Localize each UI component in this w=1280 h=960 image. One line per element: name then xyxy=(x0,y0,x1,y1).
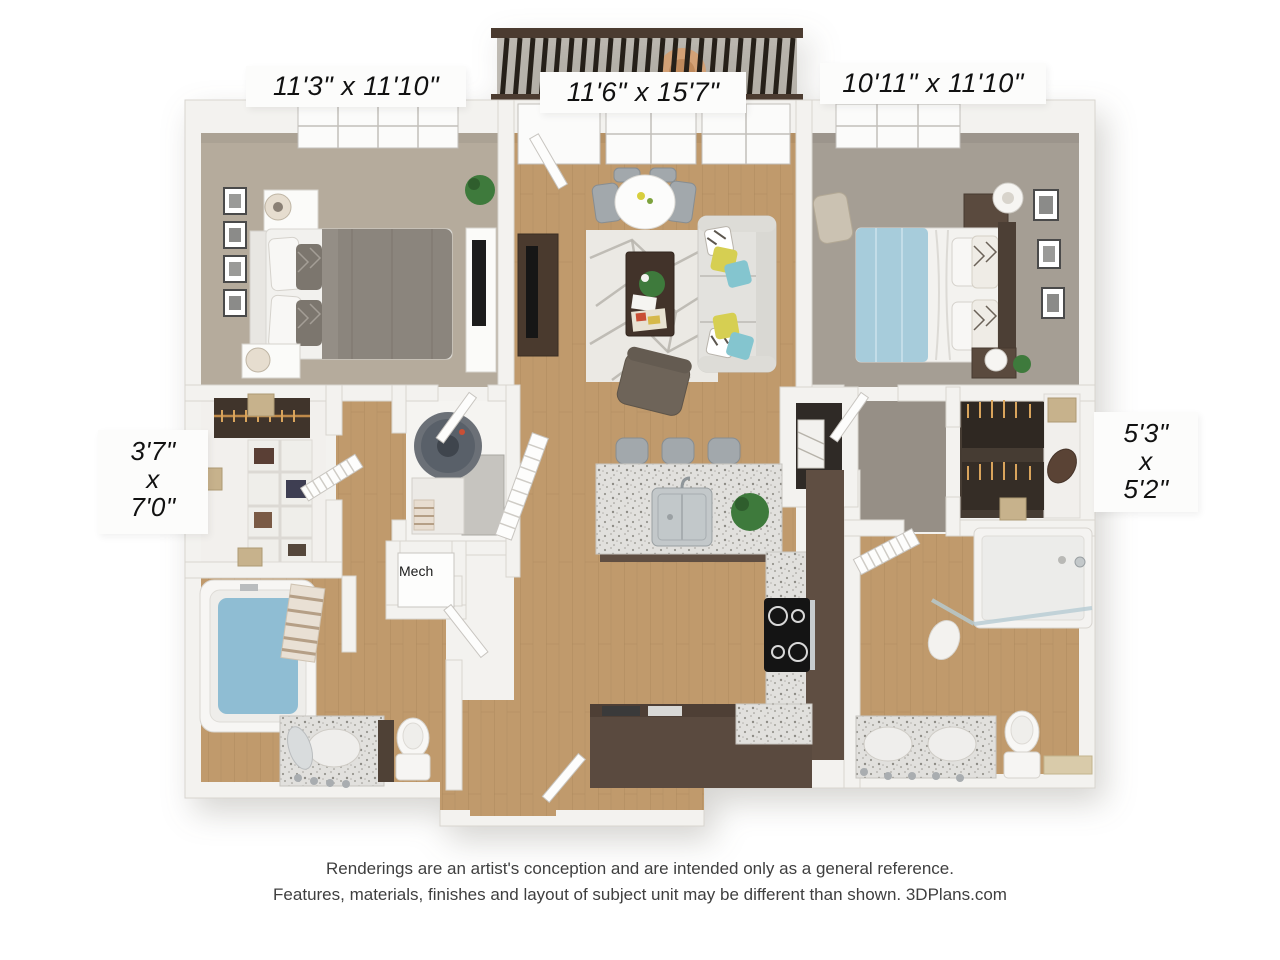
balcony-railing-top xyxy=(491,28,803,38)
tub-faucet xyxy=(240,584,258,591)
sink xyxy=(928,727,976,761)
closet-shelves xyxy=(248,440,312,562)
closet1-width: 3'7" xyxy=(106,437,200,465)
living-window-1 xyxy=(606,104,696,164)
closet1-separator: x xyxy=(106,465,200,493)
mech-closet-label: Mech xyxy=(399,563,433,579)
sofa xyxy=(698,216,776,372)
shower-head xyxy=(1075,557,1085,567)
sofa-back xyxy=(756,222,776,366)
oven-handle xyxy=(810,600,815,670)
disclaimer-line1: Renderings are an artist's conception an… xyxy=(0,856,1280,882)
bar-stool xyxy=(708,438,740,464)
closet2-width: 5'3" xyxy=(1102,419,1190,447)
living-room-dimensions-label: 11'6" x 15'7" xyxy=(540,72,746,113)
bar-stool xyxy=(662,438,694,464)
storage-box xyxy=(238,548,262,566)
lower-cabinet-run xyxy=(590,704,812,788)
table-lamp xyxy=(246,348,270,372)
bedroom2-window xyxy=(836,104,960,148)
towel xyxy=(414,500,434,530)
potted-plant xyxy=(1013,355,1031,373)
bath-mat xyxy=(1044,756,1092,774)
table-lamp xyxy=(985,349,1007,371)
tv xyxy=(472,240,486,326)
closet2-separator: x xyxy=(1102,447,1190,475)
closet2-dimensions-label: 5'3" x 5'2" xyxy=(1094,412,1198,512)
headboard xyxy=(250,231,268,357)
sink xyxy=(308,729,360,767)
headboard xyxy=(998,222,1016,368)
cooktop xyxy=(764,598,815,672)
counter-plant xyxy=(731,493,769,531)
bedroom1-window xyxy=(298,104,458,148)
centerpiece xyxy=(637,192,645,200)
dining-table xyxy=(615,175,675,229)
bed-queen-blue xyxy=(856,222,1016,368)
closet1-depth: 7'0" xyxy=(106,493,200,521)
vanity xyxy=(280,716,394,788)
closet1-dimensions-label: 3'7" x 7'0" xyxy=(98,430,208,534)
small-appliance xyxy=(648,706,682,716)
bedroom1-dimensions-label: 11'3" x 11'10" xyxy=(246,66,466,107)
lamp-finial xyxy=(1002,192,1014,204)
toilet xyxy=(396,718,430,780)
small-appliance xyxy=(602,706,640,716)
coffee-table xyxy=(626,252,674,336)
floorplan-page: 11'3" x 11'10" 11'6" x 15'7" 10'11" x 11… xyxy=(0,0,1280,960)
duvet-fold xyxy=(322,229,338,359)
sofa-arm xyxy=(698,356,776,372)
bedroom2-dimensions-label: 10'11" x 11'10" xyxy=(820,63,1046,104)
closet2-depth: 5'2" xyxy=(1102,475,1190,503)
storage-box xyxy=(1000,498,1026,520)
drain xyxy=(1058,556,1066,564)
blue-throw xyxy=(856,228,928,362)
disclaimer: Renderings are an artist's conception an… xyxy=(0,856,1280,908)
kitchen-sink xyxy=(652,478,712,546)
bed-queen-gray xyxy=(250,229,452,359)
tv xyxy=(526,246,538,338)
disclaimer-line2: Features, materials, finishes and layout… xyxy=(0,882,1280,908)
counter-corner xyxy=(736,704,812,744)
bedroom2-hall-floor xyxy=(858,401,946,532)
potted-plant xyxy=(465,175,495,205)
living-window-2 xyxy=(702,104,790,164)
double-vanity xyxy=(856,716,996,782)
bar-stool xyxy=(616,438,648,464)
magazine xyxy=(631,308,667,331)
centerpiece-leaf xyxy=(647,198,653,204)
sink xyxy=(864,727,912,761)
plant-leaf xyxy=(468,178,480,190)
storage-box xyxy=(1048,398,1076,422)
lamp-finial xyxy=(273,202,283,212)
toilet xyxy=(1004,711,1040,778)
mech-closet xyxy=(398,553,454,607)
storage-box xyxy=(248,394,274,416)
mech-door xyxy=(398,553,454,607)
vanity-side-cabinet xyxy=(378,720,394,782)
